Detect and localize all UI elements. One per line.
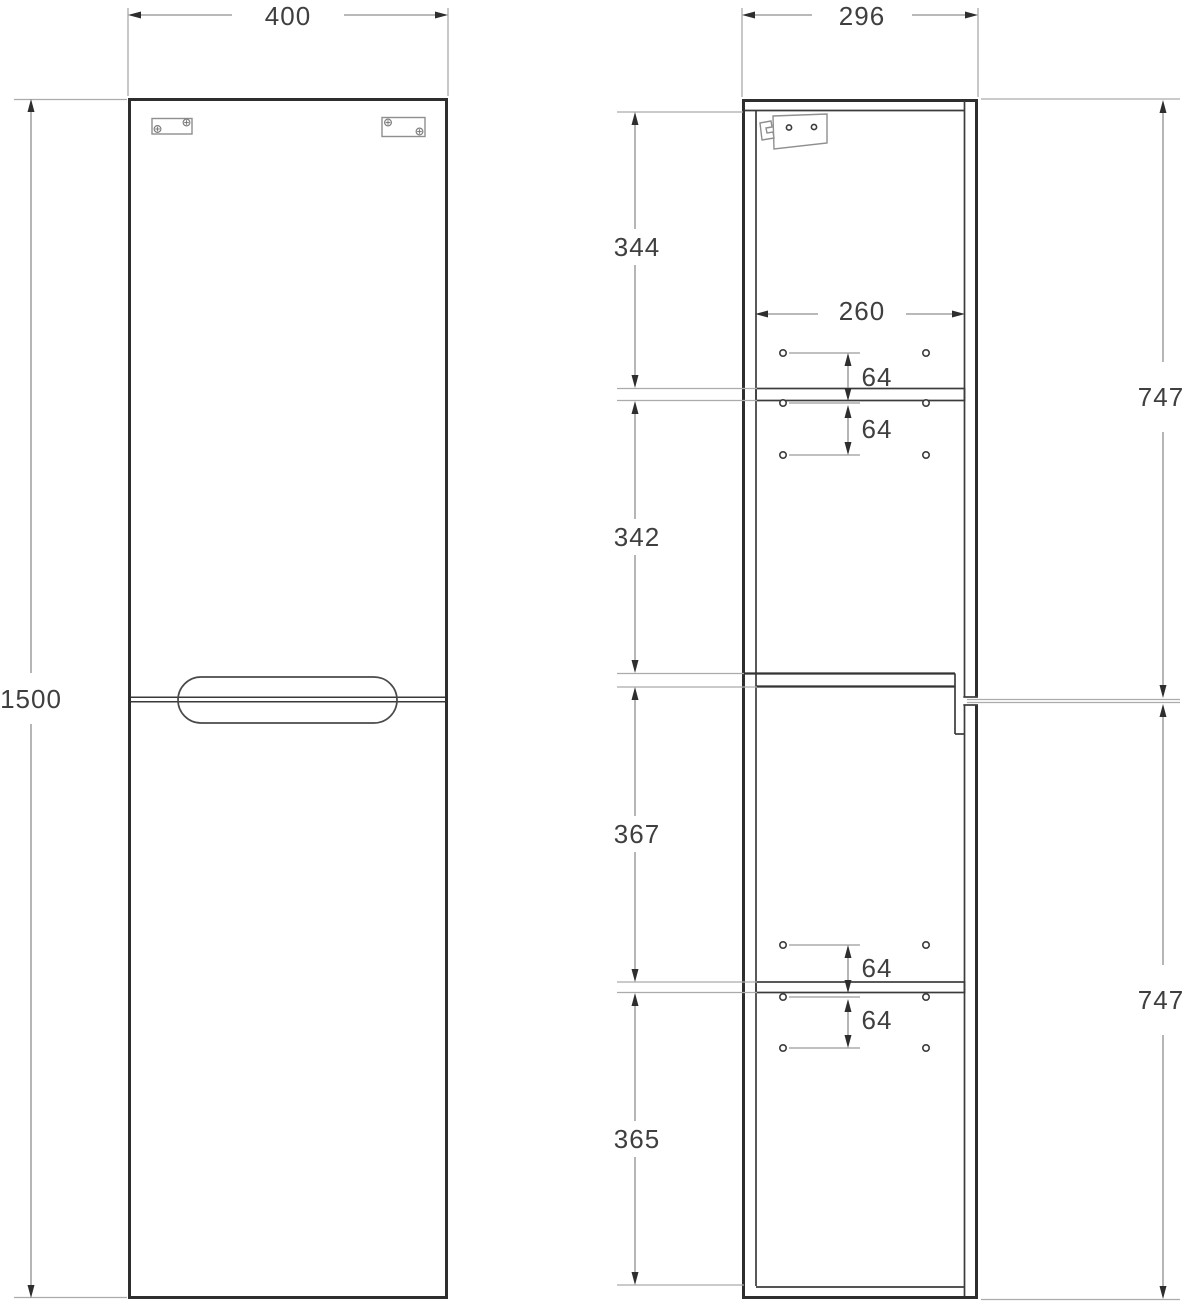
- mounting-bracket-right: [382, 118, 425, 137]
- lower-adjustable-shelf: [756, 982, 965, 993]
- arrowhead: [632, 993, 639, 1006]
- dim-hole-spacing-upper: 64 64: [789, 353, 892, 455]
- arrowhead: [1160, 685, 1167, 698]
- dimension-label-section-top: 344: [614, 232, 660, 262]
- dimension-label-hole-spacing: 64: [862, 1005, 893, 1035]
- dimension-label-overall-depth: 296: [839, 1, 885, 31]
- dim-front-overall-height: 1500: [0, 99, 127, 1298]
- arrowhead: [632, 375, 639, 388]
- arrowhead: [632, 687, 639, 700]
- shelf-pin-hole: [780, 1045, 786, 1051]
- dim-hole-spacing-lower: 64 64: [789, 945, 892, 1048]
- arrowhead: [845, 945, 852, 958]
- shelf-pin-holes-upper: [780, 350, 929, 458]
- shelf-pin-hole: [923, 1045, 929, 1051]
- arrowhead: [632, 969, 639, 982]
- side-view: [744, 100, 979, 1299]
- side-cabinet-outline: [744, 101, 979, 1298]
- dimension-label-hole-spacing: 64: [862, 414, 893, 444]
- upper-adjustable-shelf: [756, 389, 965, 401]
- arrowhead: [632, 401, 639, 414]
- arrowhead: [1160, 100, 1167, 113]
- shelf-pin-hole: [780, 350, 786, 356]
- dimension-label-hole-spacing: 64: [862, 362, 893, 392]
- shelf-pin-hole: [780, 942, 786, 948]
- shelf-pin-hole: [780, 452, 786, 458]
- shelf-pin-hole: [780, 994, 786, 1000]
- dimension-label-section-lower-middle: 367: [614, 819, 660, 849]
- arrowhead: [845, 353, 852, 366]
- dimension-label-door-height: 747: [1138, 985, 1184, 1015]
- dim-upper-door-height: 747: [967, 99, 1184, 703]
- front-view: [130, 100, 447, 1298]
- arrowhead: [845, 388, 852, 401]
- middle-fixed-shelf: [744, 674, 965, 735]
- dim-front-overall-width: 400: [128, 1, 448, 96]
- arrowhead: [632, 660, 639, 673]
- shelf-pin-hole: [923, 452, 929, 458]
- cabinet-drawing: 400 1500 296 260: [0, 0, 1185, 1303]
- shelf-pin-hole: [923, 350, 929, 356]
- mounting-bracket-left: [152, 119, 192, 135]
- dim-side-overall-depth: 296: [742, 1, 978, 97]
- dimension-label-section-bottom: 365: [614, 1124, 660, 1154]
- arrowhead: [755, 311, 768, 318]
- dimension-label-section-upper-middle: 342: [614, 522, 660, 552]
- dim-side-section-chain: 344 342 367 365: [614, 112, 757, 1285]
- door-handle: [178, 677, 397, 723]
- arrowhead: [845, 1035, 852, 1048]
- dimension-label-door-height: 747: [1138, 382, 1184, 412]
- arrowhead: [965, 12, 978, 19]
- arrowhead: [1160, 704, 1167, 717]
- dim-lower-door-height: 747: [981, 704, 1184, 1300]
- arrowhead: [845, 980, 852, 993]
- front-cabinet-outline: [130, 100, 447, 1298]
- arrowhead: [632, 112, 639, 125]
- arrowhead: [845, 442, 852, 455]
- arrowhead: [128, 12, 141, 19]
- technical-drawing-page: 400 1500 296 260: [0, 0, 1185, 1303]
- bracket-hole: [786, 125, 791, 130]
- shelf-pin-hole: [923, 994, 929, 1000]
- bracket-hole: [811, 124, 816, 129]
- arrowhead: [1160, 1286, 1167, 1299]
- hanger-clip-icon: [760, 121, 774, 140]
- arrowhead: [742, 12, 755, 19]
- arrowhead: [435, 12, 448, 19]
- dimension-label-hole-spacing: 64: [862, 953, 893, 983]
- wall-hanger-bracket: [760, 114, 827, 149]
- arrowhead: [845, 405, 852, 418]
- arrowhead: [952, 311, 965, 318]
- dim-side-interior-depth: 260: [755, 296, 965, 326]
- arrowhead: [845, 999, 852, 1012]
- shelf-pin-hole: [923, 400, 929, 406]
- arrowhead: [632, 1272, 639, 1285]
- dimension-label-interior-depth: 260: [839, 296, 885, 326]
- arrowhead: [28, 99, 35, 112]
- shelf-pin-hole: [780, 400, 786, 406]
- shelf-pin-hole: [923, 942, 929, 948]
- arrowhead: [28, 1285, 35, 1298]
- dimension-label-overall-height: 1500: [0, 684, 62, 714]
- dimension-label-overall-width: 400: [265, 1, 311, 31]
